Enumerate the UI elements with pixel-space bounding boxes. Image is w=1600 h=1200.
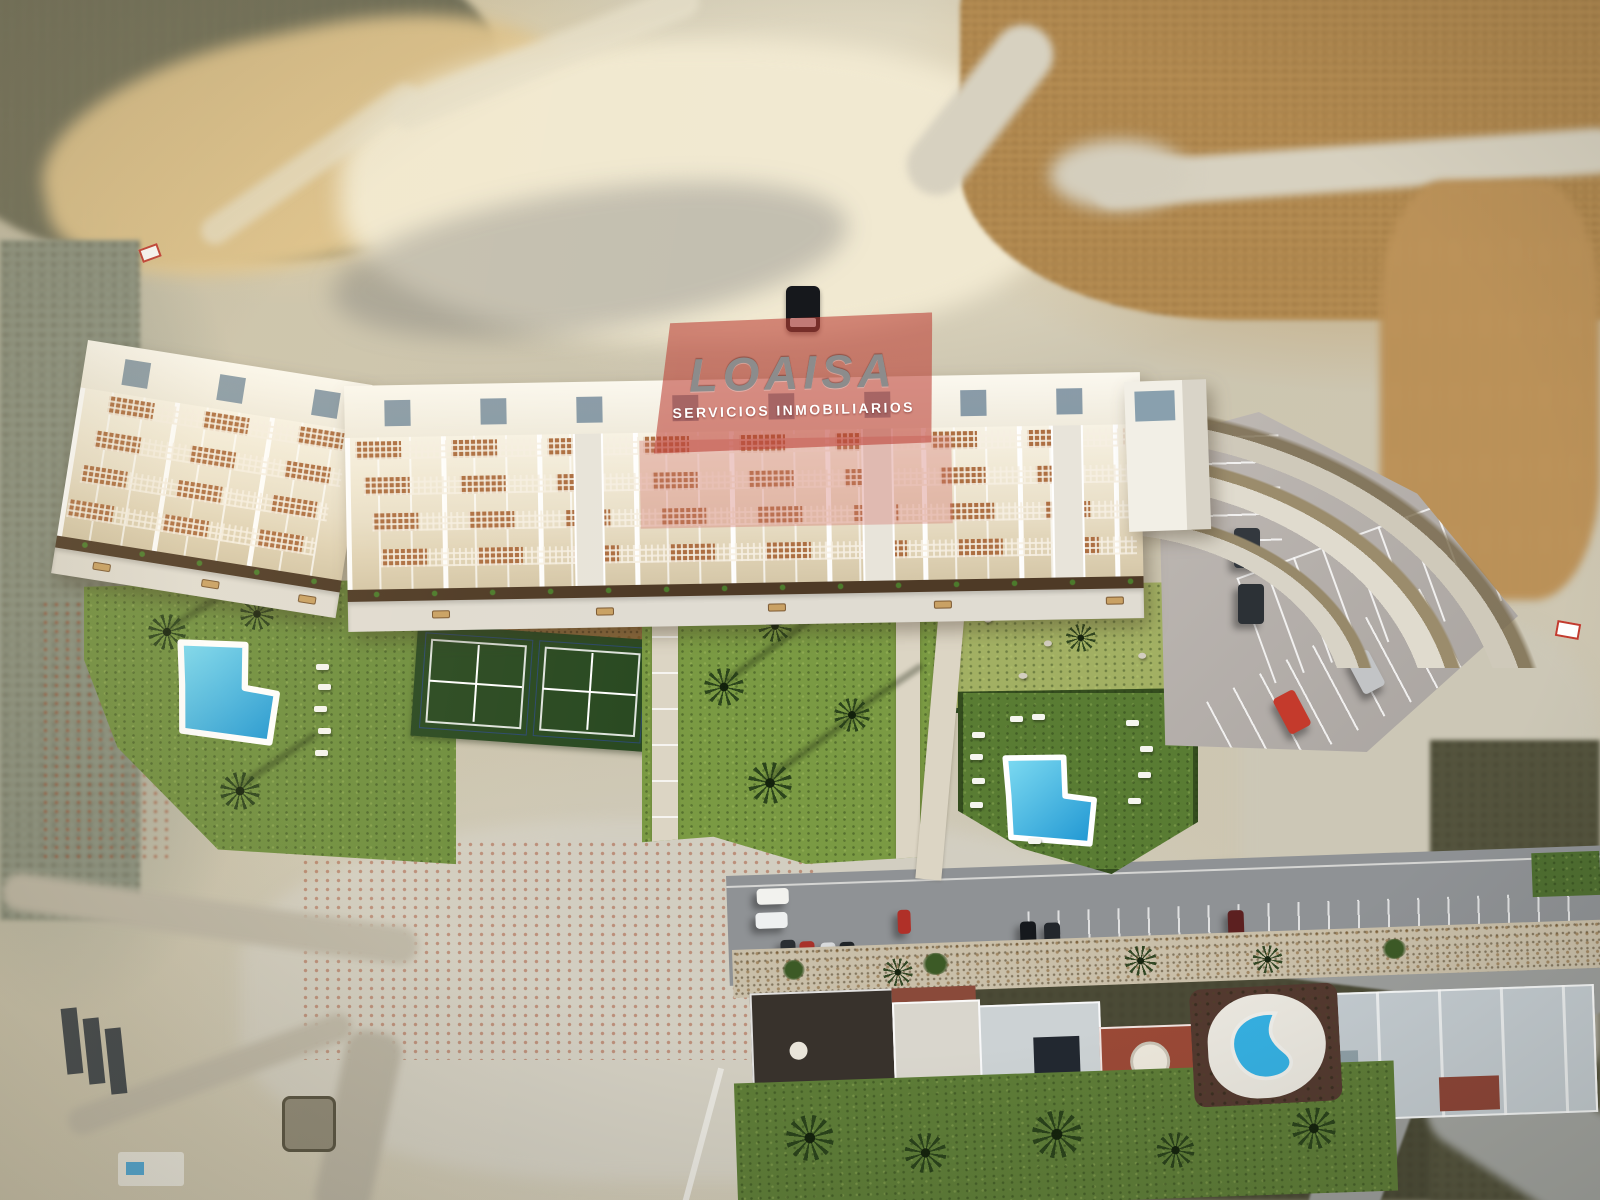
parked-car — [755, 912, 788, 929]
sun-lounger — [1032, 714, 1045, 720]
padel-courts — [410, 624, 657, 752]
sun-lounger — [316, 664, 329, 670]
dirt-track-junction — [1050, 140, 1190, 210]
shack-blue-tarp — [126, 1162, 144, 1175]
bench — [1106, 596, 1124, 604]
palm-tree — [834, 698, 870, 732]
palm-tree — [1031, 1109, 1083, 1159]
palm-tree — [1156, 1132, 1195, 1169]
sun-lounger — [315, 750, 328, 756]
roof-red-patch — [1439, 1075, 1500, 1111]
community-pool-right — [986, 752, 1109, 850]
garden-lawn-center — [642, 592, 940, 864]
sun-lounger — [1128, 798, 1141, 804]
stone-ruin — [282, 1096, 336, 1152]
palm-tree — [785, 1114, 835, 1162]
sun-lounger — [318, 684, 331, 690]
watermark-subtitle: SERVICIOS INMOBILIARIOS — [672, 398, 915, 420]
apartment-building-end-block — [1124, 379, 1211, 532]
sun-lounger — [318, 728, 331, 734]
aerial-site-photo: LOAISA SERVICIOS INMOBILIARIOS — [0, 0, 1600, 1200]
sun-lounger — [1010, 716, 1023, 722]
palm-tree — [220, 772, 260, 810]
sun-lounger — [1126, 720, 1139, 726]
bench — [201, 579, 220, 590]
bench — [298, 594, 317, 605]
existing-pool — [1218, 1002, 1314, 1091]
parked-car — [897, 910, 911, 934]
garden-walkway-right — [896, 592, 920, 864]
community-pool-left — [164, 635, 288, 750]
bench — [92, 562, 111, 573]
palm-tree — [748, 762, 792, 804]
sun-lounger — [1028, 838, 1041, 844]
roof-dome-vent — [789, 1041, 808, 1060]
stair-core — [573, 433, 606, 586]
bench — [934, 600, 952, 608]
bench — [768, 603, 786, 611]
sun-lounger — [1138, 772, 1151, 778]
sun-lounger — [972, 732, 985, 738]
sun-lounger — [970, 802, 983, 808]
palm-tree — [1291, 1107, 1336, 1151]
watermark-title: LOAISA — [688, 346, 897, 398]
sun-lounger — [970, 754, 983, 760]
existing-pool-area — [1183, 980, 1349, 1116]
white-shack — [118, 1152, 184, 1186]
sun-lounger — [972, 778, 985, 784]
rock — [1018, 673, 1027, 679]
apartment-building-left-wing — [51, 340, 372, 618]
palm-tree — [904, 1132, 947, 1173]
rock — [1044, 640, 1052, 646]
palm-tree — [704, 668, 744, 706]
roof-skylight — [1134, 390, 1175, 421]
sun-lounger — [1140, 746, 1153, 752]
bench — [596, 607, 614, 615]
watermark: LOAISA SERVICIOS INMOBILIARIOS — [650, 312, 935, 453]
parked-car — [756, 888, 789, 905]
bench — [432, 610, 450, 618]
hedge-lawn-street-corner — [1531, 851, 1600, 897]
stair-core — [1051, 425, 1086, 578]
sun-lounger — [314, 706, 327, 712]
padel-court-1 — [419, 632, 533, 735]
padel-court-2 — [533, 640, 647, 743]
